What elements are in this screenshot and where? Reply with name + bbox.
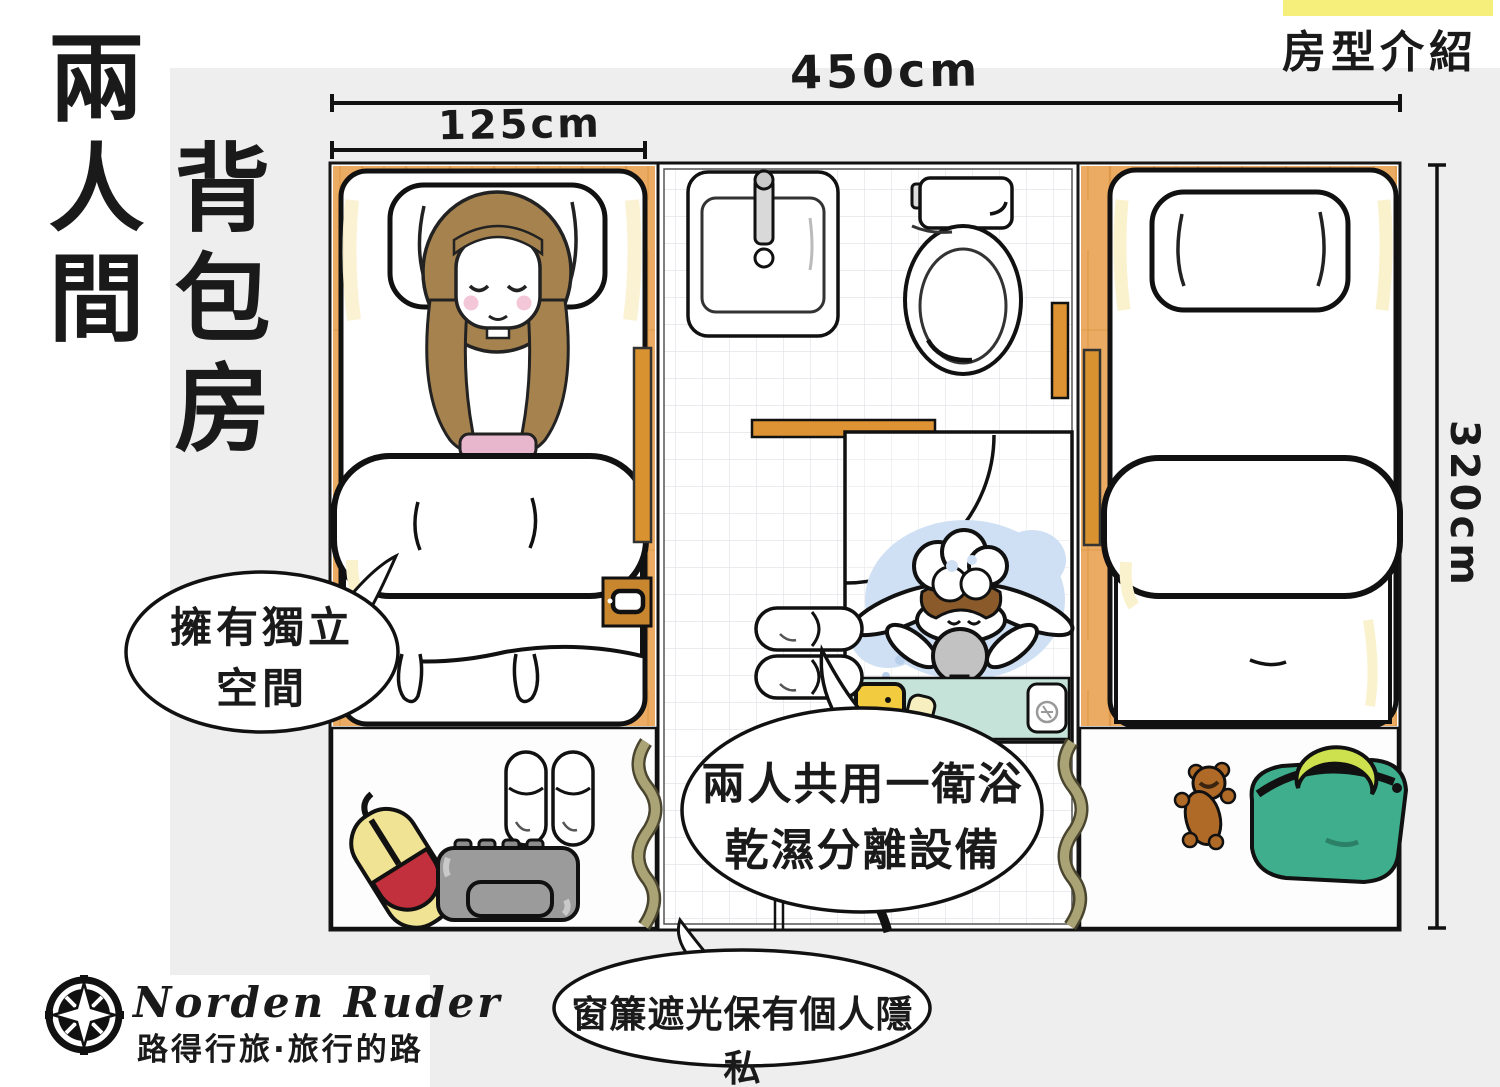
room-width-dimension-label: 450cm: [790, 42, 982, 99]
shower-stall-icon: [845, 432, 1078, 742]
brand-tagline: 路得行旅·旅行的路: [137, 1024, 424, 1069]
bottom-bubble-text: 窗簾遮光保有個人隱私: [560, 984, 925, 1087]
compass-logo-icon: [45, 975, 124, 1055]
right-blanket-icon: [1104, 458, 1400, 722]
door-lock-icon: [603, 578, 651, 626]
center-bubble-text: 兩人共用一衛浴 乾濕分離設備: [690, 752, 1035, 884]
blush-icon: [464, 296, 479, 311]
bed-width-dimension-label: 125cm: [438, 101, 603, 150]
left-bubble-text: 擁有獨立 空間: [148, 598, 376, 720]
right-door-panel-icon: [1084, 350, 1100, 545]
room-type-illustration: 兩人間 背包房 房型介紹 450cm 125cm 320cm 擁有獨立 空間 兩…: [0, 0, 1500, 1087]
right-room: [1078, 163, 1406, 930]
room-depth-dimension-label: 320cm: [1443, 420, 1487, 560]
blush-icon: [517, 296, 532, 311]
left-room: [330, 163, 658, 940]
page-title-column-2: 背包房: [166, 138, 262, 558]
right-pillow-icon: [1152, 192, 1348, 310]
suitcase-icon: [438, 840, 578, 920]
page-title-column-1: 兩人間: [40, 28, 136, 428]
right-bed-icon: [1104, 170, 1400, 726]
travel-bag-icon: [1252, 747, 1406, 882]
door-frame-icon: [1052, 303, 1068, 398]
left-door-panel-icon: [634, 348, 651, 542]
center-bubble-line1: 兩人共用一衛浴: [690, 752, 1035, 818]
drain-icon: [755, 249, 773, 267]
toilet-icon: [905, 178, 1021, 374]
toiletry-jar-icon: [1028, 684, 1066, 732]
corner-tag-label: 房型介紹: [1282, 16, 1492, 80]
center-bubble-line2: 乾濕分離設備: [690, 818, 1035, 884]
sink-icon: [688, 171, 838, 336]
left-bubble-line2: 空間: [148, 659, 376, 720]
brand-name: Norden Ruder: [133, 978, 502, 1027]
left-bubble-line1: 擁有獨立: [148, 598, 376, 659]
